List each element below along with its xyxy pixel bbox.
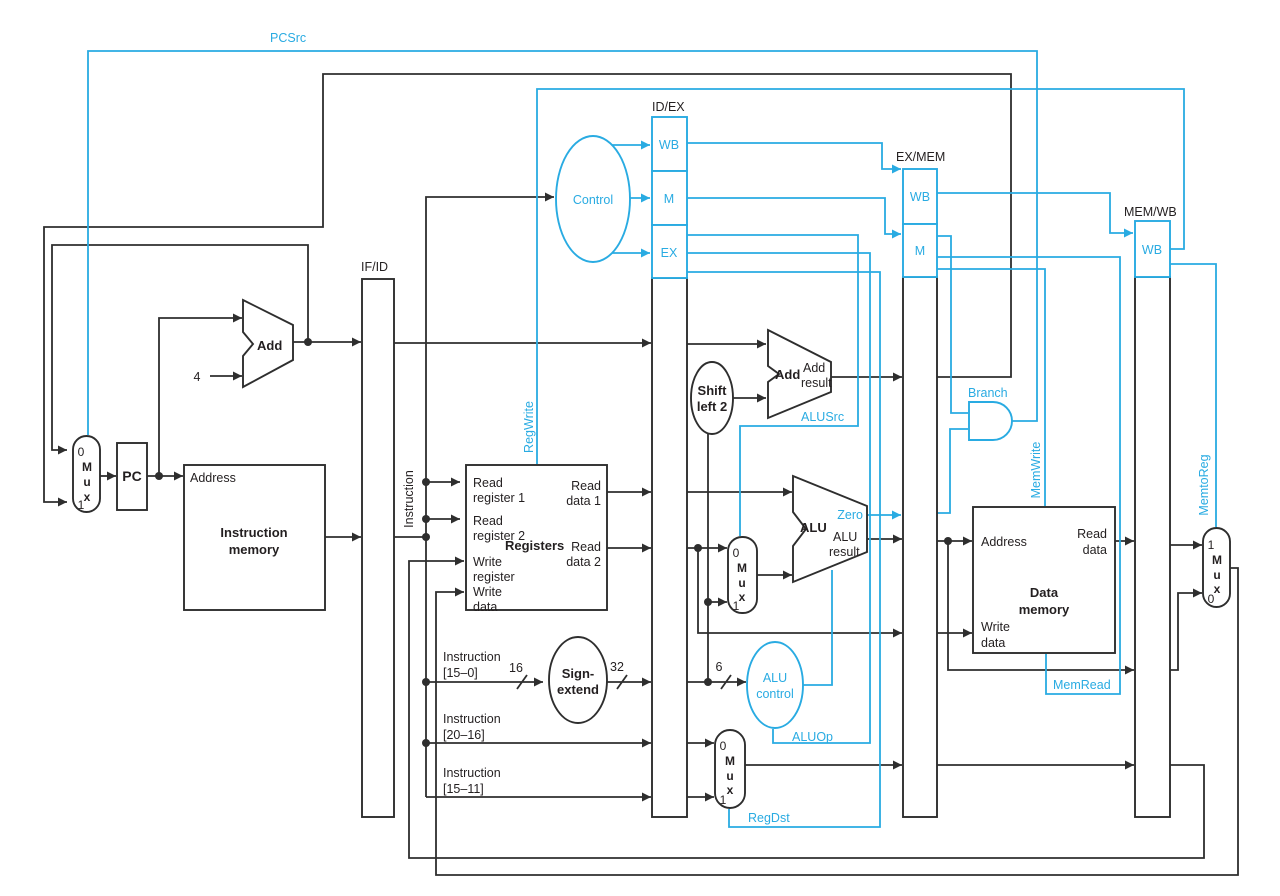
idex-m: M — [664, 192, 674, 206]
alumux-u: u — [738, 576, 745, 590]
regwrite-label: RegWrite — [522, 401, 536, 453]
wire-branch — [937, 236, 968, 413]
instruction-vertical-label: Instruction — [402, 470, 416, 528]
memwrite-label: MemWrite — [1029, 442, 1043, 499]
control-label: Control — [573, 193, 613, 207]
pcmux-0: 0 — [78, 445, 85, 459]
regdstmux-m: M — [725, 754, 735, 768]
data-memory: Address Read data Data memory Write data… — [973, 442, 1115, 692]
pcsrc-label: PCSrc — [270, 31, 306, 45]
zero-label: Zero — [837, 508, 863, 522]
width-16: 16 — [509, 661, 523, 675]
alu-label: ALU — [800, 520, 827, 535]
idex-ex: EX — [661, 246, 678, 260]
datapath-svg: 0 M u x 1 PC Add 4 Address Instruction m… — [0, 0, 1280, 896]
shift-l2: left 2 — [697, 399, 727, 414]
readdata1-l2: data 1 — [566, 494, 601, 508]
instruction-memory: Address Instruction memory — [184, 465, 325, 610]
shift-left-2: Shift left 2 — [691, 362, 733, 434]
i150-l1: Instruction — [443, 650, 501, 664]
mem-to-reg-mux: 1 M u x 0 MemtoReg — [1197, 454, 1230, 607]
memwb-label: MEM/WB — [1124, 205, 1177, 219]
alumux-0: 0 — [733, 546, 740, 560]
imem-label-1: Instruction — [220, 525, 287, 540]
branch-and-gate: Branch — [968, 386, 1012, 440]
dmem-label-1: Data — [1030, 585, 1059, 600]
wire-pc-to-add — [159, 318, 242, 476]
wbmux-x: x — [1214, 582, 1221, 596]
alumux-1: 1 — [733, 599, 740, 613]
dmem-address-label: Address — [981, 535, 1027, 549]
registers-label: Registers — [505, 538, 564, 553]
alu-result-l1: ALU — [833, 530, 857, 544]
wire-aluresult-to-wbmux — [1170, 593, 1202, 670]
pc-src-mux: 0 M u x 1 — [73, 436, 100, 512]
exmem-m: M — [915, 244, 925, 258]
memwb-register: MEM/WB WB — [1124, 205, 1177, 817]
wire-alucontrol-to-alu — [802, 570, 832, 685]
pcmux-m: M — [82, 460, 92, 474]
exmem-wb: WB — [910, 190, 930, 204]
exmem-label: EX/MEM — [896, 150, 945, 164]
readdata1-l1: Read — [571, 479, 601, 493]
sign-extend: Sign- extend — [549, 637, 607, 723]
wbmux-1: 1 — [1208, 538, 1215, 552]
alumux-m: M — [737, 561, 747, 575]
signext-l1: Sign- — [562, 666, 595, 681]
dmem-readdata-l1: Read — [1077, 527, 1107, 541]
ifid-label: IF/ID — [361, 260, 388, 274]
alu-result-l2: result — [829, 545, 860, 559]
alu-control: ALU control ALUOp — [747, 642, 833, 744]
wbmux-u: u — [1213, 568, 1220, 582]
width-32: 32 — [610, 660, 624, 674]
alu: ALU Zero ALU result ALUSrc — [793, 410, 867, 582]
wbmux-0: 0 — [1208, 592, 1215, 606]
pcmux-x: x — [84, 490, 91, 504]
dmem-readdata-l2: data — [1083, 543, 1107, 557]
regdstmux-u: u — [726, 769, 733, 783]
i1511-l2: [15–11] — [443, 782, 484, 796]
readdata2-l2: data 2 — [566, 555, 601, 569]
add-result-l2: result — [801, 376, 832, 390]
regdstmux-1: 1 — [720, 793, 727, 807]
idex-wb: WB — [659, 138, 679, 152]
reg-dst-mux: 0 M u x 1 RegDst — [715, 730, 790, 825]
imem-label-2: memory — [229, 542, 280, 557]
dmem-writedata-l1: Write — [981, 620, 1010, 634]
pc-register: PC — [117, 443, 147, 510]
readreg2-l1: Read — [473, 514, 503, 528]
memread-label: MemRead — [1053, 678, 1111, 692]
regdstmux-0: 0 — [720, 739, 727, 753]
writereg-l2: register — [473, 570, 515, 584]
add-result-l1: Add — [803, 361, 825, 375]
width-6: 6 — [716, 660, 723, 674]
pc-adder: Add 4 — [194, 300, 293, 387]
dmem-label-2: memory — [1019, 602, 1070, 617]
control-unit: Control — [556, 136, 630, 262]
writereg-l1: Write — [473, 555, 502, 569]
readreg1-l1: Read — [473, 476, 503, 490]
alusrc-label: ALUSrc — [801, 410, 844, 424]
wire-exmem-wb-fwd — [937, 193, 1133, 233]
readreg1-l2: register 1 — [473, 491, 525, 505]
i150-l2: [15–0] — [443, 666, 478, 680]
pcmux-1: 1 — [78, 498, 85, 512]
wbmux-m: M — [1212, 553, 1222, 567]
writedata-l1: Write — [473, 585, 502, 599]
wire-idex-wb-fwd — [687, 143, 901, 169]
regdstmux-x: x — [727, 783, 734, 797]
add-label: Add — [257, 338, 282, 353]
pc-label: PC — [122, 468, 141, 484]
mips-pipeline-diagram: 0 M u x 1 PC Add 4 Address Instruction m… — [0, 0, 1280, 896]
dmem-writedata-l2: data — [981, 636, 1005, 650]
signext-l2: extend — [557, 682, 599, 697]
alucontrol-l2: control — [756, 687, 794, 701]
alucontrol-l1: ALU — [763, 671, 787, 685]
memwb-wb: WB — [1142, 243, 1162, 257]
shift-l1: Shift — [698, 383, 728, 398]
i2016-l2: [20–16] — [443, 728, 485, 742]
branch-label: Branch — [968, 386, 1008, 400]
wire-wbmux-loopback — [436, 568, 1238, 875]
memtoreg-label: MemtoReg — [1197, 454, 1211, 515]
writedata-l2: data — [473, 600, 497, 614]
readdata2-l1: Read — [571, 540, 601, 554]
alu-src-mux: 0 M u x 1 — [728, 537, 757, 613]
regdst-label: RegDst — [748, 811, 790, 825]
wire-zero-to-and — [937, 429, 968, 513]
i1511-l1: Instruction — [443, 766, 501, 780]
branch-add-label: Add — [775, 367, 800, 382]
wire-idex-m-fwd — [687, 198, 901, 234]
i2016-l1: Instruction — [443, 712, 501, 726]
branch-adder: Add Add result — [768, 330, 832, 418]
alumux-x: x — [739, 590, 746, 604]
four-label: 4 — [194, 370, 201, 384]
aluop-label: ALUOp — [792, 730, 833, 744]
pcmux-u: u — [83, 475, 90, 489]
idex-label: ID/EX — [652, 100, 685, 114]
imem-address-label: Address — [190, 471, 236, 485]
exmem-register: EX/MEM WB M — [896, 150, 945, 817]
idex-register: ID/EX WB M EX — [652, 100, 687, 817]
